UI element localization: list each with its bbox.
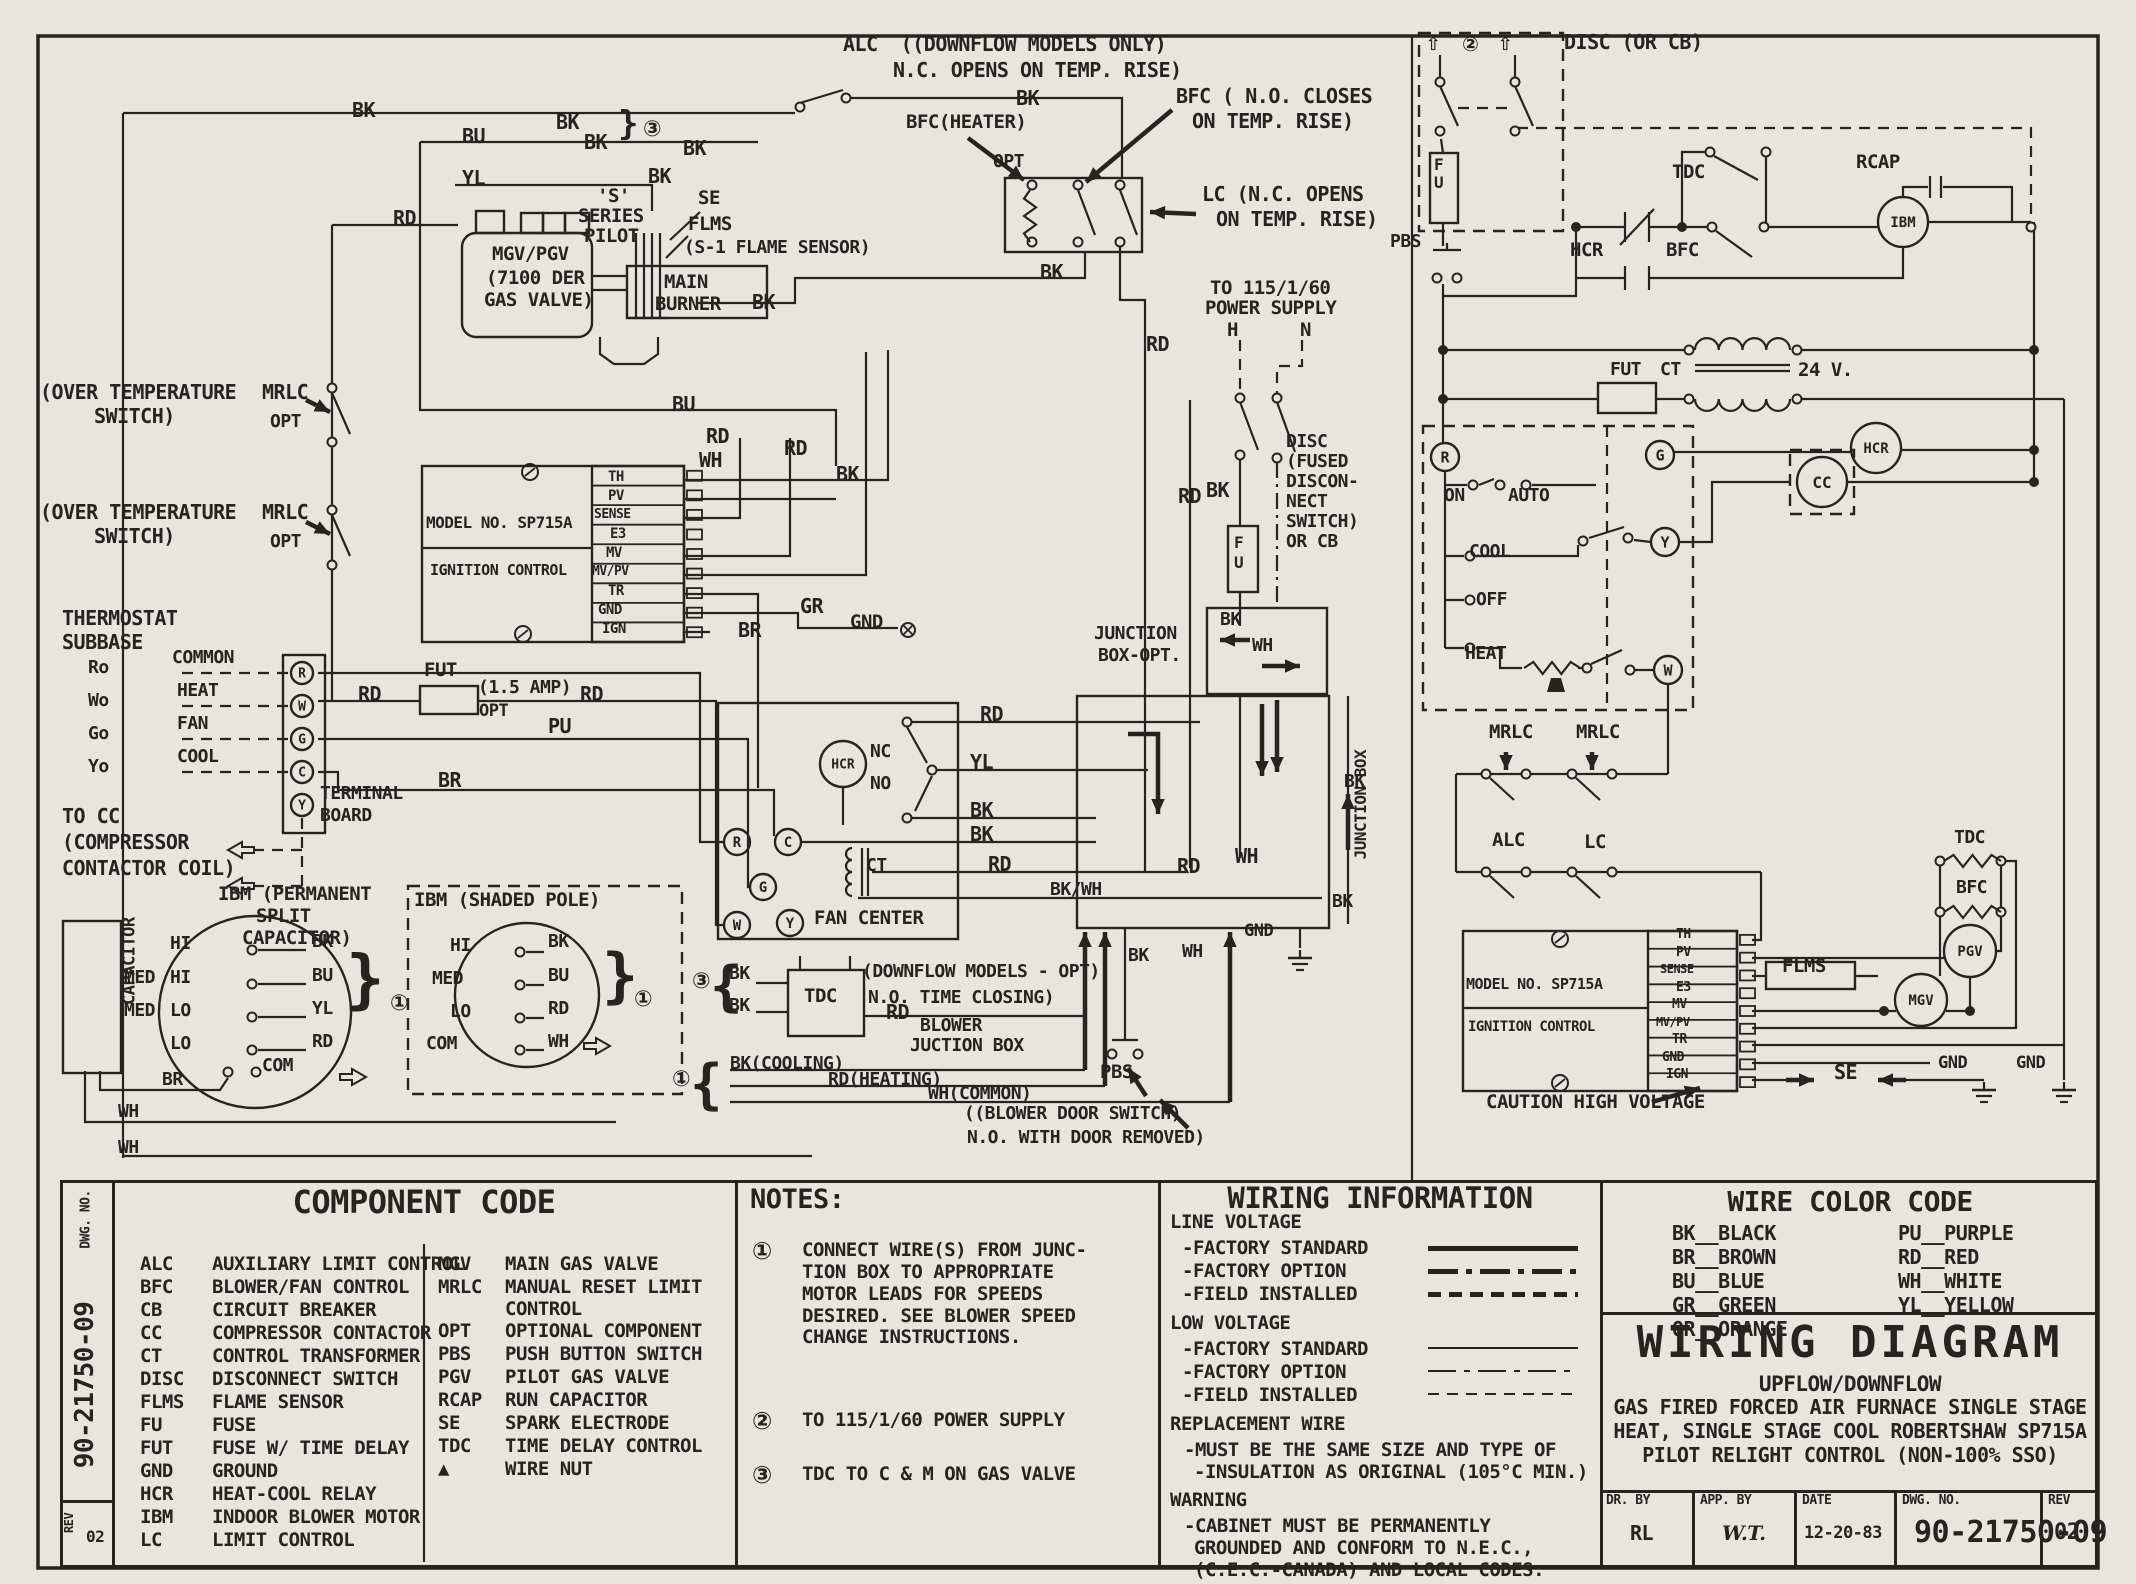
- wire-label: LO: [170, 1034, 191, 1053]
- wire-label: SE: [1834, 1062, 1857, 1084]
- wire-label: N.C. OPENS ON TEMP. RISE): [893, 60, 1182, 82]
- component-desc: CIRCUIT BREAKER: [212, 1300, 376, 1322]
- terminal-dot: [1482, 868, 1491, 877]
- wire: [1443, 227, 1576, 296]
- wire: [1441, 139, 1443, 153]
- drawing-subtitle-1: UPFLOW/DOWNFLOW: [1759, 1372, 1941, 1396]
- note-number: ②: [752, 1408, 772, 1436]
- wire-label: FUT: [1610, 360, 1641, 379]
- junction-dot: [1965, 1006, 1975, 1016]
- line-style-sample: [1428, 1393, 1578, 1395]
- wiring-info-line: GROUNDED AND CONFORM TO N.E.C.,: [1194, 1538, 1533, 1560]
- wire-label: PILOT: [584, 226, 639, 247]
- wire: [1679, 482, 1790, 542]
- terminal-tab: [687, 569, 702, 579]
- component-circle-label: IBM: [1890, 215, 1915, 231]
- wire-label: OFF: [1476, 590, 1507, 609]
- wire: [1515, 86, 1533, 126]
- component-desc: HEAT-COOL RELAY: [212, 1484, 376, 1506]
- component-abbr: DISC: [140, 1369, 184, 1391]
- arrowhead-icon: [1151, 799, 1165, 814]
- wiring-info-heading: WARNING: [1170, 1490, 1247, 1512]
- wire-label: BK: [752, 292, 775, 314]
- wiring-info-line: -INSULATION AS ORIGINAL (105°C MIN.): [1194, 1462, 1588, 1484]
- wire-label: U: [1234, 554, 1243, 571]
- wire: [318, 772, 774, 836]
- wire-label: E3: [1676, 981, 1691, 995]
- component-circle-label: Y: [786, 916, 795, 932]
- wire-label: WH: [1182, 942, 1203, 961]
- wire-label: MODEL NO. SP715A: [426, 514, 572, 531]
- junction-dot: [1879, 1006, 1889, 1016]
- terminal-dot: [1583, 664, 1592, 673]
- component-circle-label: MGV: [1908, 993, 1934, 1009]
- wire-label: JUNCTION BOX: [1352, 750, 1369, 860]
- appby-label: APP. BY: [1700, 1494, 1751, 1509]
- wire: [1490, 778, 1514, 800]
- note-text: TDC TO C & M ON GAS VALVE: [802, 1464, 1075, 1486]
- wire-color-entry: PU__PURPLE: [1898, 1222, 2013, 1245]
- wire: [1240, 402, 1258, 450]
- wire: [518, 630, 528, 638]
- strip-dwg-number: 90-21750-09: [71, 1295, 101, 1475]
- wire-label: RD: [1177, 856, 1200, 878]
- wire-label: ③: [692, 970, 710, 994]
- arrowhead-icon: [1799, 1073, 1814, 1087]
- component-abbr: ▲: [438, 1459, 449, 1481]
- component-box: [521, 213, 543, 233]
- wire-label: WH: [118, 1138, 139, 1157]
- wire-label: RD: [980, 704, 1003, 726]
- wire-label: BFC: [1956, 878, 1987, 897]
- hollow-arrow-icon: [584, 1038, 610, 1054]
- wire-label: BU: [462, 126, 485, 148]
- wire: [800, 90, 843, 103]
- wire-label: BK/WH: [1050, 880, 1102, 899]
- wire-label: HCR: [1570, 240, 1603, 261]
- wire-label: HI: [450, 936, 471, 955]
- wire: [1716, 231, 1752, 257]
- wire-label: WH: [1235, 846, 1258, 868]
- wire-label: MV: [606, 546, 622, 561]
- wire: [1479, 479, 1494, 485]
- wire-label: BU: [672, 394, 695, 416]
- component-abbr: FLMS: [140, 1392, 184, 1414]
- component-abbr: CB: [140, 1300, 162, 1322]
- wire-label: CT: [866, 856, 887, 875]
- drawing-subtitle-4: PILOT RELIGHT CONTROL (NON-100% SSO): [1642, 1444, 2057, 1467]
- terminal-tab: [1740, 1042, 1755, 1052]
- wiring-info-row: -FIELD INSTALLED: [1182, 1385, 1357, 1407]
- terminal-dot: [1466, 596, 1475, 605]
- wire: [1078, 190, 1095, 235]
- component-circle-label: C: [784, 835, 792, 851]
- terminal-dot: [516, 1014, 525, 1023]
- wire-label: TH: [608, 470, 624, 485]
- wire-label: MV: [1672, 998, 1687, 1012]
- terminal-dot: [1706, 148, 1715, 157]
- wire-label: MRLC: [262, 502, 308, 524]
- wire-label: COM: [426, 1034, 457, 1053]
- wire-label: GND: [1662, 1051, 1684, 1065]
- wire-label: BOX-OPT.: [1098, 646, 1181, 665]
- wire-label: CAPACITOR: [121, 917, 139, 1005]
- wire-label: CAUTION HIGH VOLTAGE: [1486, 1092, 1705, 1113]
- wire: [907, 727, 927, 763]
- terminal-dot: [328, 438, 337, 447]
- wire-label: NECT: [1286, 492, 1327, 511]
- component-abbr: HCR: [140, 1484, 173, 1506]
- component-abbr: IBM: [140, 1507, 173, 1529]
- wiring-info-heading: LOW VOLTAGE: [1170, 1313, 1290, 1335]
- terminal-dot: [1511, 127, 1520, 136]
- terminal-tab: [1740, 1059, 1755, 1069]
- terminal-dot: [1608, 770, 1617, 779]
- component-circle-label: Y: [1660, 533, 1669, 551]
- wire-label: BK: [1206, 480, 1229, 502]
- divider: [1692, 1490, 1695, 1568]
- component-box: [1598, 383, 1656, 413]
- component-circle-label: G: [759, 880, 767, 896]
- wire-label: BK: [970, 800, 993, 822]
- wiring-info-heading: LINE VOLTAGE: [1170, 1212, 1301, 1234]
- line-style-sample: [1428, 1370, 1578, 1372]
- wire-label: (S-1 FLAME SENSOR): [684, 238, 870, 257]
- arrowhead-icon: [1499, 755, 1513, 770]
- arrowhead-icon: [1585, 755, 1599, 770]
- line-style-sample: [1428, 1269, 1578, 1274]
- wire: [332, 393, 350, 434]
- drawing-subtitle-2: GAS FIRED FORCED AIR FURNACE SINGLE STAG…: [1613, 1396, 2086, 1419]
- wire: [1903, 187, 1928, 197]
- strip-rev-label: REV: [63, 1505, 77, 1541]
- wire-label: WH: [1252, 636, 1273, 655]
- component-desc: MANUAL RESET LIMIT CONTROL: [505, 1277, 702, 1321]
- terminal-dot: [1624, 534, 1633, 543]
- component-circle-label: G: [1655, 446, 1664, 464]
- terminal-dot: [1074, 181, 1083, 190]
- component-box: [543, 213, 565, 233]
- wire-label: WH: [699, 450, 722, 472]
- wire-label: DISCON-: [1286, 472, 1358, 491]
- wire-label: OR CB: [1286, 532, 1338, 551]
- terminal-rail: [1648, 931, 1737, 1091]
- arrowhead-icon: [1270, 757, 1284, 772]
- terminal-dot: [1762, 148, 1771, 157]
- component-desc: MAIN GAS VALVE: [505, 1254, 658, 1276]
- wire: [1634, 540, 1651, 542]
- wire-label: ON TEMP. RISE): [1216, 209, 1378, 231]
- wire-label: FLMS: [1782, 956, 1826, 977]
- divider: [112, 1180, 115, 1568]
- divider: [60, 1500, 112, 1503]
- drby-label: DR. BY: [1606, 1494, 1650, 1509]
- wire-label: BU: [548, 966, 569, 985]
- terminal-dot: [1708, 223, 1717, 232]
- wire-label: Yo: [88, 757, 109, 776]
- wire: [848, 98, 1122, 178]
- wire-label: YL: [312, 999, 333, 1018]
- wire-label: DISC (OR CB): [1564, 32, 1703, 54]
- component-abbr: RCAP: [438, 1390, 482, 1412]
- wire-label: Ro: [88, 658, 109, 677]
- wire-label: BK: [584, 132, 607, 154]
- component-circle-label: HCR: [1863, 441, 1889, 457]
- wire-label: SWITCH): [94, 526, 175, 548]
- wire-label: BFC(HEATER): [906, 112, 1026, 133]
- wire: [1576, 876, 1600, 898]
- component-desc: TIME DELAY CONTROL: [505, 1436, 702, 1458]
- wire: [1555, 935, 1565, 943]
- wire-label: BK: [836, 464, 859, 486]
- wire-label: TDC: [1672, 162, 1705, 183]
- terminal-dot: [248, 1013, 257, 1022]
- coil-icon: [846, 848, 852, 896]
- wire-label: ①: [672, 1068, 690, 1092]
- wire-label: BK: [312, 932, 333, 951]
- terminal-dot: [1482, 770, 1491, 779]
- terminal-dot: [1436, 127, 1445, 136]
- wire-label: PBS: [1390, 232, 1421, 251]
- wire-label: HEAT: [177, 681, 218, 700]
- wire-label: MGV/PGV: [492, 244, 569, 265]
- wire-label: OPT: [993, 152, 1024, 171]
- wire-label: THERMOSTAT: [62, 608, 177, 630]
- wire-label: LO: [450, 1002, 471, 1021]
- note-number: ③: [752, 1462, 772, 1490]
- wire-label: ((BLOWER DOOR SWITCH): [964, 1104, 1181, 1123]
- wire-label: COM: [262, 1056, 293, 1075]
- rev-label: REV: [2048, 1494, 2070, 1509]
- wire-label: SUBBASE: [62, 632, 143, 654]
- component-circle-label: W: [1663, 661, 1673, 679]
- wire-label: WH: [548, 1032, 569, 1051]
- wire: [1944, 906, 2001, 918]
- wire-label: MODEL NO. SP715A: [1466, 976, 1603, 992]
- note-text: TO 115/1/60 POWER SUPPLY: [802, 1410, 1065, 1432]
- wire-label: RD: [312, 1032, 333, 1051]
- wire-label: GND: [2016, 1054, 2045, 1072]
- wire-label: LO: [170, 1001, 191, 1020]
- date-label: DATE: [1802, 1494, 1831, 1509]
- terminal-dot: [1236, 394, 1245, 403]
- wire-label: IBM (SHADED POLE): [414, 890, 600, 911]
- wire-label: CAPACITOR): [242, 928, 351, 949]
- terminal-dot: [903, 814, 912, 823]
- divider: [1600, 1490, 2098, 1493]
- component-desc: WIRE NUT: [505, 1459, 593, 1481]
- terminal-dot: [1793, 395, 1802, 404]
- component-box: [1423, 426, 1693, 710]
- wire-label: BR: [162, 1070, 183, 1089]
- wire-label: BK(COOLING): [730, 1054, 844, 1073]
- wire-label: BFC ( N.O. CLOSES: [1176, 86, 1372, 108]
- wire: [1944, 855, 2001, 867]
- component-desc: COMPRESSOR CONTACTOR: [212, 1323, 431, 1345]
- wire: [1524, 662, 1580, 674]
- wire-label: RD(HEATING): [828, 1070, 942, 1089]
- divider: [1600, 1180, 1603, 1568]
- wire-label: BR: [438, 770, 461, 792]
- wire-label: GR: [800, 596, 823, 618]
- wire-label: OPT: [270, 412, 301, 431]
- wire-label: MV/PV: [1656, 1016, 1690, 1029]
- wire-label: IBM (PERMANENT: [218, 884, 371, 905]
- wire: [915, 776, 932, 811]
- wire-label: ③: [643, 118, 661, 142]
- component-circle-label: G: [298, 733, 306, 748]
- terminal-dot: [328, 506, 337, 515]
- wire-label: BK: [1128, 946, 1149, 965]
- wire-color-entry: YL__YELLOW: [1898, 1294, 2013, 1317]
- wire: [1490, 876, 1514, 898]
- junction-dot: [1438, 394, 1448, 404]
- component-box: [1077, 696, 1329, 928]
- wire-label: RD: [988, 854, 1011, 876]
- terminal-dot: [1522, 770, 1531, 779]
- dwg-label: DWG. NO.: [1902, 1494, 1961, 1509]
- wire-label: BK: [648, 166, 671, 188]
- component-code-title: COMPONENT CODE: [293, 1184, 556, 1221]
- wire-label: DISC: [1286, 432, 1327, 451]
- wire-label: NC: [870, 742, 891, 761]
- line-style-sample: [1428, 1292, 1578, 1297]
- line-style-sample: [1428, 1246, 1578, 1251]
- coil-icon: [1695, 399, 1790, 411]
- wire: [525, 468, 535, 476]
- junction-dot: [1571, 222, 1581, 232]
- wire-label: ALC: [1492, 830, 1525, 851]
- wiring-info-row: -FIELD INSTALLED: [1182, 1284, 1357, 1306]
- terminal-dot: [1074, 238, 1083, 247]
- terminal-dot: [1134, 1050, 1143, 1059]
- wire-label: BK: [683, 138, 706, 160]
- wire-label: SENSE: [594, 508, 631, 522]
- wire-label: (FUSED: [1286, 452, 1348, 471]
- rev-value: 02: [2054, 1520, 2080, 1545]
- component-desc: DISCONNECT SWITCH: [212, 1369, 398, 1391]
- wire: [1752, 872, 1761, 940]
- wiring-diagram-sheet: RWGCYRCGWYHCRRGYWHCRCCIBMMGVPGV BKALC ((…: [0, 0, 2136, 1584]
- terminal-dot: [1685, 395, 1694, 404]
- wire-color-code-title: WIRE COLOR CODE: [1727, 1186, 1972, 1218]
- wire-label: HEAT: [1465, 644, 1506, 663]
- component-circle-label: PGV: [1957, 944, 1983, 960]
- wire-label: SENSE: [1660, 963, 1694, 976]
- wire-label: RD: [548, 999, 569, 1018]
- component-abbr: PBS: [438, 1344, 471, 1366]
- component-desc: LIMIT CONTROL: [212, 1530, 354, 1552]
- terminal-dot: [1236, 451, 1245, 460]
- wire-label: BOARD: [320, 806, 372, 825]
- wire-label: GND: [598, 603, 622, 618]
- component-box: [1463, 931, 1737, 1091]
- wire-label: ①: [634, 988, 652, 1012]
- wire: [1086, 110, 1172, 182]
- strip-rev-value: 02: [86, 1528, 104, 1546]
- wire-color-entry: GR__GREEN: [1672, 1294, 1776, 1317]
- wire-label: YL: [462, 168, 485, 190]
- wire-label: OPT: [270, 532, 301, 551]
- arrowhead-icon: [1255, 761, 1269, 776]
- wire-label: TR: [1672, 1033, 1687, 1047]
- component-abbr: GND: [140, 1461, 173, 1483]
- wire-label: N.O. WITH DOOR REMOVED): [967, 1128, 1205, 1147]
- wire-label: MRLC: [262, 382, 308, 404]
- date-value: 12-20-83: [1804, 1524, 1882, 1544]
- wire-label: SE: [698, 188, 720, 209]
- notes-title: NOTES:: [750, 1184, 845, 1215]
- wire-label: RD: [1178, 486, 1201, 508]
- component-desc: PUSH BUTTON SWITCH: [505, 1344, 702, 1366]
- terminal-dot: [248, 1046, 257, 1055]
- wire-label: HI: [170, 934, 191, 953]
- wire-label: COMMON: [172, 648, 234, 667]
- component-desc: OPTIONAL COMPONENT: [505, 1321, 702, 1343]
- arrowhead-icon: [1150, 206, 1165, 219]
- wire-label: Wo: [88, 691, 109, 710]
- terminal-dot: [1028, 181, 1037, 190]
- wire-label: BK: [352, 100, 375, 122]
- wire-label: RD: [706, 426, 729, 448]
- terminal-dot: [1453, 274, 1462, 283]
- wire-label: OPT: [479, 702, 508, 720]
- component-box: [718, 703, 958, 939]
- wire-label: BLOWER: [920, 1016, 982, 1035]
- component-circle-label: W: [733, 918, 742, 934]
- wire-label: PBS: [1100, 1062, 1133, 1083]
- terminal-dot: [328, 561, 337, 570]
- terminal-dot: [1568, 868, 1577, 877]
- component-abbr: TDC: [438, 1436, 471, 1458]
- component-desc: INDOOR BLOWER MOTOR: [212, 1507, 420, 1529]
- wire: [1714, 156, 1758, 180]
- component-desc: BLOWER/FAN CONTROL: [212, 1277, 409, 1299]
- wire-label: TDC: [1954, 828, 1985, 847]
- wire-label: NO: [870, 774, 891, 793]
- wire-label: AUTO: [1508, 486, 1549, 505]
- component-box: [63, 921, 121, 1073]
- appby-value: W.T.: [1722, 1522, 1766, 1545]
- wire: [1996, 912, 2001, 951]
- wire-label: RCAP: [1856, 152, 1900, 173]
- wire-label: ②: [1462, 34, 1478, 56]
- arrowhead-icon: [1285, 659, 1300, 673]
- wire-label: F: [1234, 534, 1243, 551]
- wire-label: Go: [88, 724, 109, 743]
- terminal-dot: [1608, 868, 1617, 877]
- terminal-dot: [1116, 238, 1125, 247]
- wire-color-entry: BR__BROWN: [1672, 1246, 1776, 1269]
- component-circle-label: R: [298, 667, 306, 682]
- line-style-sample: [1428, 1347, 1578, 1349]
- arrowhead-icon: [1223, 932, 1237, 947]
- terminal-dot: [842, 94, 851, 103]
- wire-label: PV: [608, 489, 624, 504]
- divider: [1894, 1490, 1897, 1568]
- wire-label: IGNITION CONTROL: [430, 562, 567, 578]
- wire-label: GND: [1244, 922, 1273, 940]
- wire-label: BU: [312, 966, 333, 985]
- wire-label: MRLC: [1489, 722, 1533, 743]
- component-circle-label: R: [733, 835, 742, 851]
- note-text: CONNECT WIRE(S) FROM JUNC- TION BOX TO A…: [802, 1240, 1086, 1349]
- wiring-info-row: -FACTORY STANDARD: [1182, 1339, 1368, 1361]
- wire-label: TDC: [804, 986, 837, 1007]
- terminal-dot: [1579, 537, 1588, 546]
- terminal-dot: [1685, 346, 1694, 355]
- wire: [1277, 340, 1302, 394]
